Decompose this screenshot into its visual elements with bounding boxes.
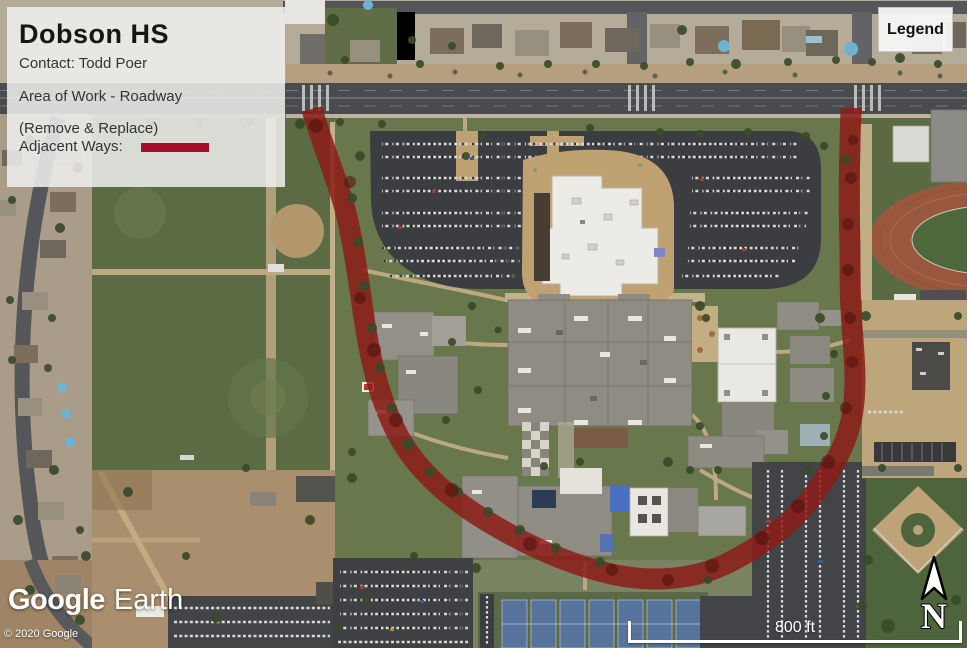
google-earth-viewport[interactable]: Dobson HS Contact: Todd Poer Area of Wor… [0,0,967,648]
north-compass: N [905,553,963,633]
north-label: N [921,596,947,633]
copyright-attribution: © 2020 Google [4,628,78,640]
contact-line: Contact: Todd Poer [19,55,147,72]
area-of-work-line: Area of Work - Roadway [19,88,182,105]
parking-lot-south-center [333,558,473,648]
east-zone [860,110,967,478]
dirt-yard-southwest [92,470,360,648]
legend-button[interactable]: Legend [878,7,953,52]
main-building [508,294,692,426]
adjacent-ways-line: Adjacent Ways: [19,138,209,155]
neighborhood-west [0,114,96,648]
north-arrow-icon [922,557,946,599]
project-info-panel: Dobson HS Contact: Todd Poer Area of Wor… [7,7,285,187]
adjacent-ways-label: Adjacent Ways: [19,138,123,155]
watermark-google: Google [8,584,105,616]
google-earth-watermark: GoogleEarth [8,584,183,617]
remove-replace-line: (Remove & Replace) [19,120,158,137]
watermark-earth: Earth [114,584,183,616]
roadway-highlight-swatch [141,143,209,152]
auditorium-building [522,150,674,303]
project-title: Dobson HS [19,19,169,50]
